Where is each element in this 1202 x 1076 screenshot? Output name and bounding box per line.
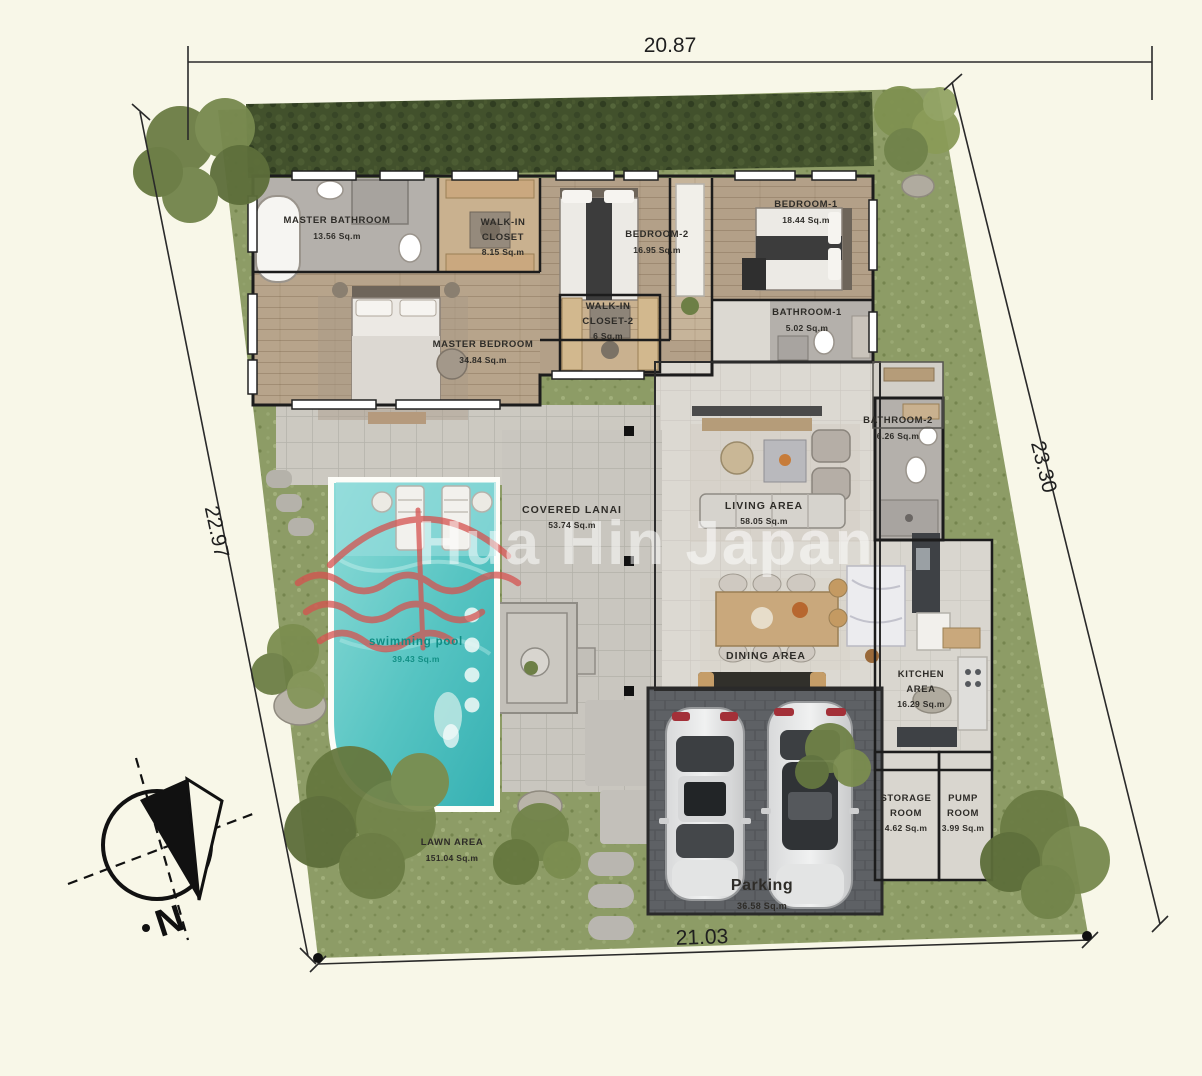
room-area: 13.56 Sq.m (262, 230, 412, 243)
room-name: WALK-IN CLOSET-2 (569, 300, 647, 329)
room-area: 151.04 Sq.m (387, 852, 517, 865)
room-area: 6 Sq.m (569, 330, 647, 343)
room-area: 39.43 Sq.m (341, 653, 491, 666)
room-area: 34.84 Sq.m (403, 354, 563, 367)
room-label-swimming-pool: swimming pool 39.43 Sq.m (341, 634, 491, 666)
dimension-top: 20.87 (644, 34, 697, 58)
room-label-master-bathroom: MASTER BATHROOM 13.56 Sq.m (262, 214, 412, 243)
room-label-covered-lanai: COVERED LANAI 53.74 Sq.m (487, 502, 657, 532)
room-name: DINING AREA (696, 648, 836, 664)
room-area: 53.74 Sq.m (487, 519, 657, 532)
room-name: COVERED LANAI (487, 502, 657, 518)
hedge (246, 92, 874, 178)
room-label-walk-in-closet-2: WALK-IN CLOSET-2 6 Sq.m (569, 300, 647, 344)
room-label-storage-room: STORAGE ROOM 4.62 Sq.m (872, 792, 940, 836)
room-name: STORAGE ROOM (872, 792, 940, 821)
room-name: LIVING AREA (694, 498, 834, 514)
room-label-dining-area: DINING AREA (696, 648, 836, 665)
room-label-living-area: LIVING AREA 58.05 Sq.m (694, 498, 834, 528)
room-area: 16.95 Sq.m (602, 244, 712, 257)
room-area: 58.05 Sq.m (694, 515, 834, 528)
room-name: LAWN AREA (387, 836, 517, 851)
room-area: 4.62 Sq.m (872, 822, 940, 835)
room-name: BEDROOM-1 (751, 198, 861, 213)
room-name: WALK-IN CLOSET (467, 216, 539, 245)
room-label-parking: Parking 36.58 Sq.m (687, 874, 837, 914)
room-name: MASTER BEDROOM (403, 338, 563, 353)
room-label-kitchen-area: KITCHEN AREA 16.29 Sq.m (885, 668, 957, 712)
room-label-lawn-area: LAWN AREA 151.04 Sq.m (387, 836, 517, 865)
room-name: Parking (687, 874, 837, 899)
room-area: 8.15 Sq.m (467, 246, 539, 259)
room-name: PUMP ROOM (937, 792, 989, 821)
dimension-bottom: 21.03 (675, 925, 728, 951)
room-area: 16.29 Sq.m (885, 698, 957, 711)
floor-plan-canvas: Hua Hin Japan MASTER BATHROOM 13.56 Sq.m… (0, 0, 1202, 1076)
room-area: 18.44 Sq.m (751, 214, 861, 227)
room-area: 3.99 Sq.m (937, 822, 989, 835)
car-1 (659, 708, 751, 900)
room-name: KITCHEN AREA (885, 668, 957, 697)
room-area: 6.26 Sq.m (843, 430, 953, 443)
room-name: swimming pool (341, 634, 491, 652)
room-label-bedroom-1: BEDROOM-1 18.44 Sq.m (751, 198, 861, 227)
room-label-bathroom-2: BATHROOM-2 6.26 Sq.m (843, 414, 953, 443)
room-name: BEDROOM-2 (602, 228, 712, 243)
room-name: MASTER BATHROOM (262, 214, 412, 229)
room-label-bathroom-1: BATHROOM-1 5.02 Sq.m (752, 306, 862, 335)
room-area: 5.02 Sq.m (752, 322, 862, 335)
room-area: 36.58 Sq.m (687, 900, 837, 914)
room-label-bedroom-2: BEDROOM-2 16.95 Sq.m (602, 228, 712, 257)
room-label-pump-room: PUMP ROOM 3.99 Sq.m (937, 792, 989, 836)
room-label-walk-in-closet: WALK-IN CLOSET 8.15 Sq.m (467, 216, 539, 260)
room-name: BATHROOM-1 (752, 306, 862, 321)
room-label-master-bedroom: MASTER BEDROOM 34.84 Sq.m (403, 338, 563, 367)
room-name: BATHROOM-2 (843, 414, 953, 429)
